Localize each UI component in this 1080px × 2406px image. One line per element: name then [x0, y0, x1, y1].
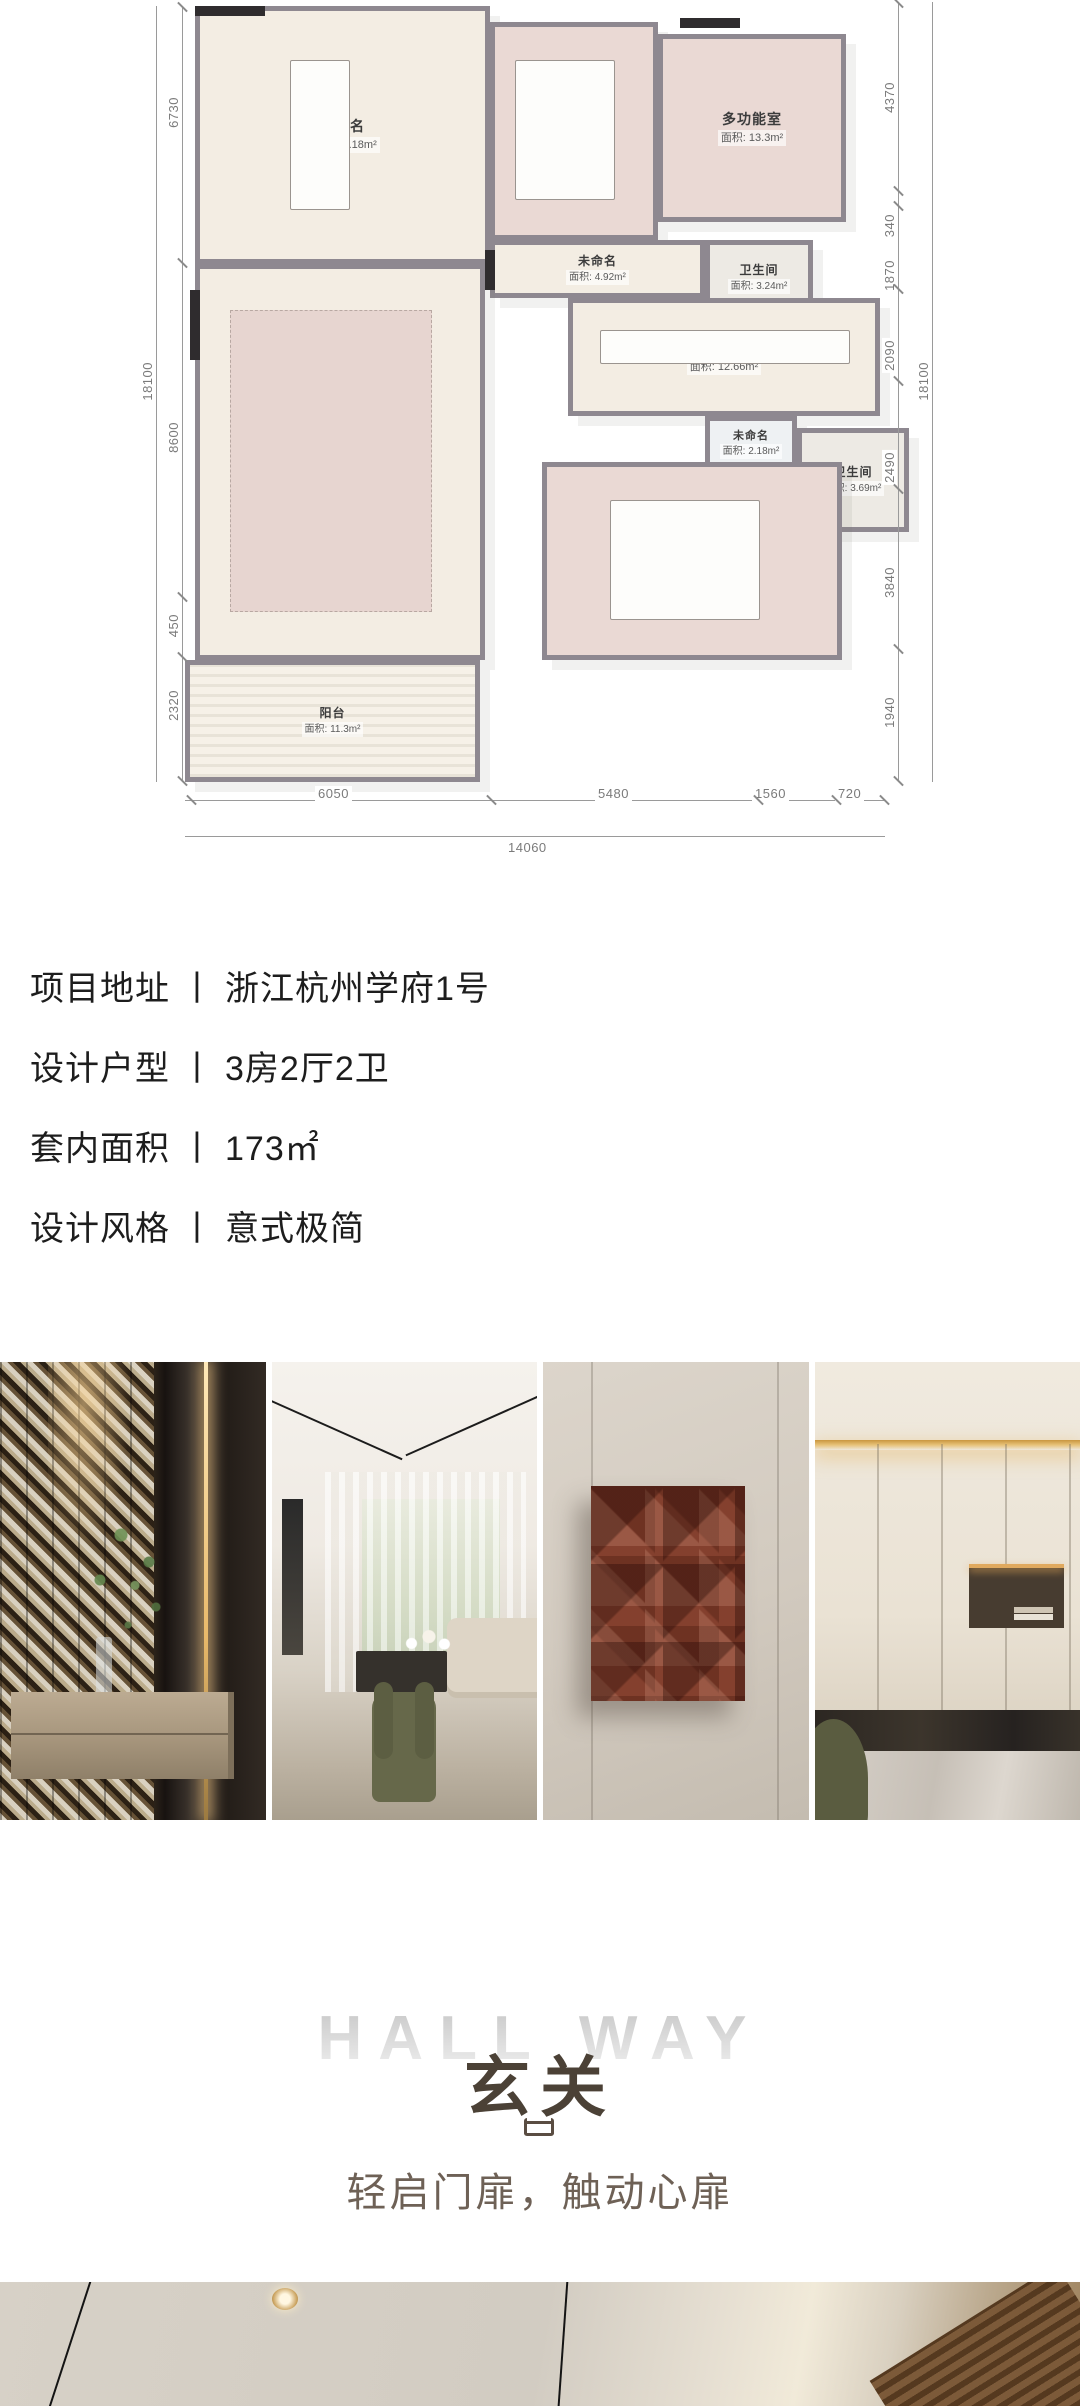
wall-accent [195, 6, 265, 16]
room-name: 未命名 [733, 429, 769, 444]
geometric-wall-art [591, 1486, 745, 1701]
room-area: 面积: 4.92m² [566, 270, 629, 285]
plant-branches [58, 1481, 198, 1661]
floating-console [11, 1692, 235, 1779]
photo-cabinet-wall [815, 1362, 1080, 1820]
dim-line-right [898, 2, 899, 782]
recessed-spotlight [272, 2288, 298, 2310]
info-value: 浙江杭州学府1号 [225, 970, 490, 1008]
room-multifunction: 多功能室 面积: 13.3m² [658, 34, 846, 222]
dim-label: 2490 [882, 450, 897, 485]
wall-seam [777, 1362, 779, 1820]
track-light-line [272, 1394, 404, 1461]
white-flowers [394, 1623, 464, 1657]
furniture-wardrobe-row [600, 330, 850, 364]
dim-line-bottom-total [185, 836, 885, 837]
dim-line-left [182, 6, 183, 782]
dim-label: 4370 [882, 80, 897, 115]
furniture-bed-small [515, 60, 615, 200]
info-row-address: 项目地址丨浙江杭州学府1号 [30, 961, 490, 1010]
tv-panel [282, 1499, 303, 1655]
dim-label: 6730 [166, 95, 181, 130]
room-area: 面积: 3.24m² [728, 279, 791, 294]
info-separator: 丨 [170, 1050, 225, 1088]
dim-label: 720 [835, 786, 864, 801]
info-row-layout: 设计户型丨3房2厅2卫 [30, 1041, 390, 1090]
room-name: 未命名 [578, 253, 617, 270]
info-label: 设计户型 [30, 1050, 170, 1088]
info-separator: 丨 [170, 970, 225, 1008]
glass-vase [96, 1637, 112, 1695]
dim-line-left-total [156, 6, 157, 782]
wood-slat-corner [870, 2282, 1080, 2406]
wall-accent [680, 18, 740, 28]
dim-label: 1870 [882, 258, 897, 293]
dim-label-total: 18100 [140, 360, 155, 403]
room-area: 面积: 11.3m² [302, 722, 364, 737]
photo-living-room [272, 1362, 538, 1820]
room-area: 面积: 2.18m² [720, 444, 783, 459]
info-row-area: 套内面积丨173㎡ [30, 1121, 320, 1170]
info-label: 设计风格 [30, 1210, 170, 1248]
dim-label-total: 18100 [916, 360, 931, 403]
photo-terracotta-wall-art [543, 1362, 809, 1820]
dim-label: 6050 [315, 786, 352, 801]
display-niche [969, 1564, 1065, 1628]
info-value: 3房2厅2卫 [225, 1050, 390, 1088]
room-area: 面积: 13.3m² [718, 130, 786, 147]
dim-label-total: 14060 [505, 840, 550, 855]
olive-armchair [372, 1692, 436, 1802]
page: 未命名 面积: 28.18m² 卧室 面积: 10.06m² 多功能室 面积: … [0, 0, 1080, 2406]
dim-label: 8600 [166, 420, 181, 455]
track-light-line [552, 2282, 569, 2406]
section-title-cn: 玄关 [0, 2034, 1080, 2130]
info-separator: 丨 [170, 1210, 225, 1248]
wall-accent [190, 290, 200, 360]
dim-label: 1940 [882, 695, 897, 730]
info-row-style: 设计风格丨意式极简 [30, 1201, 365, 1250]
section-tagline: 轻启门扉，触动心扉 [0, 2160, 1080, 2218]
info-value: 173㎡ [225, 1130, 320, 1168]
info-label: 套内面积 [30, 1130, 170, 1168]
room-balcony: 阳台 面积: 11.3m² [185, 660, 480, 782]
floor-plan: 未命名 面积: 28.18m² 卧室 面积: 10.06m² 多功能室 面积: … [140, 0, 1020, 860]
track-light-line [26, 2282, 96, 2406]
dim-label: 2320 [166, 688, 181, 723]
room-name: 阳台 [319, 705, 345, 722]
dim-label: 3840 [882, 565, 897, 600]
dim-label: 340 [882, 212, 897, 239]
dim-label: 5480 [595, 786, 632, 801]
room-name: 多功能室 [722, 110, 782, 130]
photo-gallery [0, 1362, 1080, 1820]
dim-label: 2090 [882, 338, 897, 373]
console-drawer-line [11, 1733, 229, 1735]
room-hall-corridor: 未命名 面积: 4.92m² [490, 240, 705, 298]
info-value: 意式极简 [225, 1210, 365, 1248]
info-separator: 丨 [170, 1130, 225, 1168]
wall-accent [485, 250, 495, 290]
room-name: 卫生间 [739, 262, 778, 279]
furniture-dining-table [290, 60, 350, 210]
track-light-line [405, 1389, 537, 1456]
photo-hallway-ceiling [0, 2282, 1080, 2406]
dim-label: 450 [166, 612, 181, 639]
info-label: 项目地址 [30, 970, 170, 1008]
living-room-rug [230, 310, 432, 612]
photo-entry-chevron-wall [0, 1362, 266, 1820]
dim-line-right-total [932, 2, 933, 782]
furniture-bed-master [610, 500, 760, 620]
doorway-icon [524, 2118, 554, 2136]
